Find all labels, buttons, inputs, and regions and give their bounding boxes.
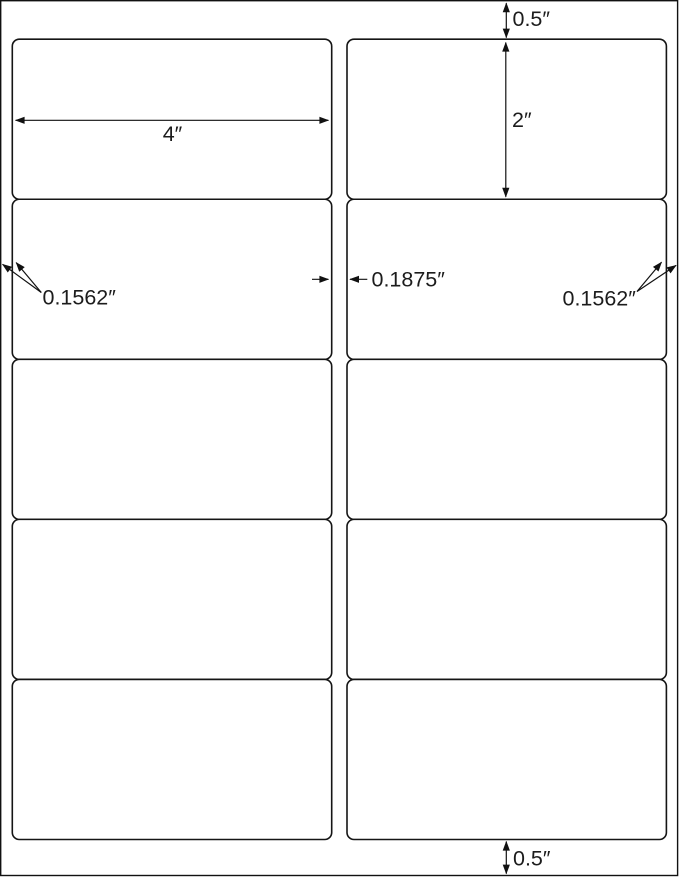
svg-text:2″: 2″ [512, 108, 532, 132]
svg-text:0.1562″: 0.1562″ [563, 287, 637, 311]
svg-text:4″: 4″ [163, 122, 183, 146]
svg-text:0.5″: 0.5″ [513, 7, 551, 31]
svg-text:0.5″: 0.5″ [513, 847, 551, 871]
svg-text:0.1562″: 0.1562″ [43, 286, 117, 310]
svg-text:0.1875″: 0.1875″ [372, 268, 446, 292]
